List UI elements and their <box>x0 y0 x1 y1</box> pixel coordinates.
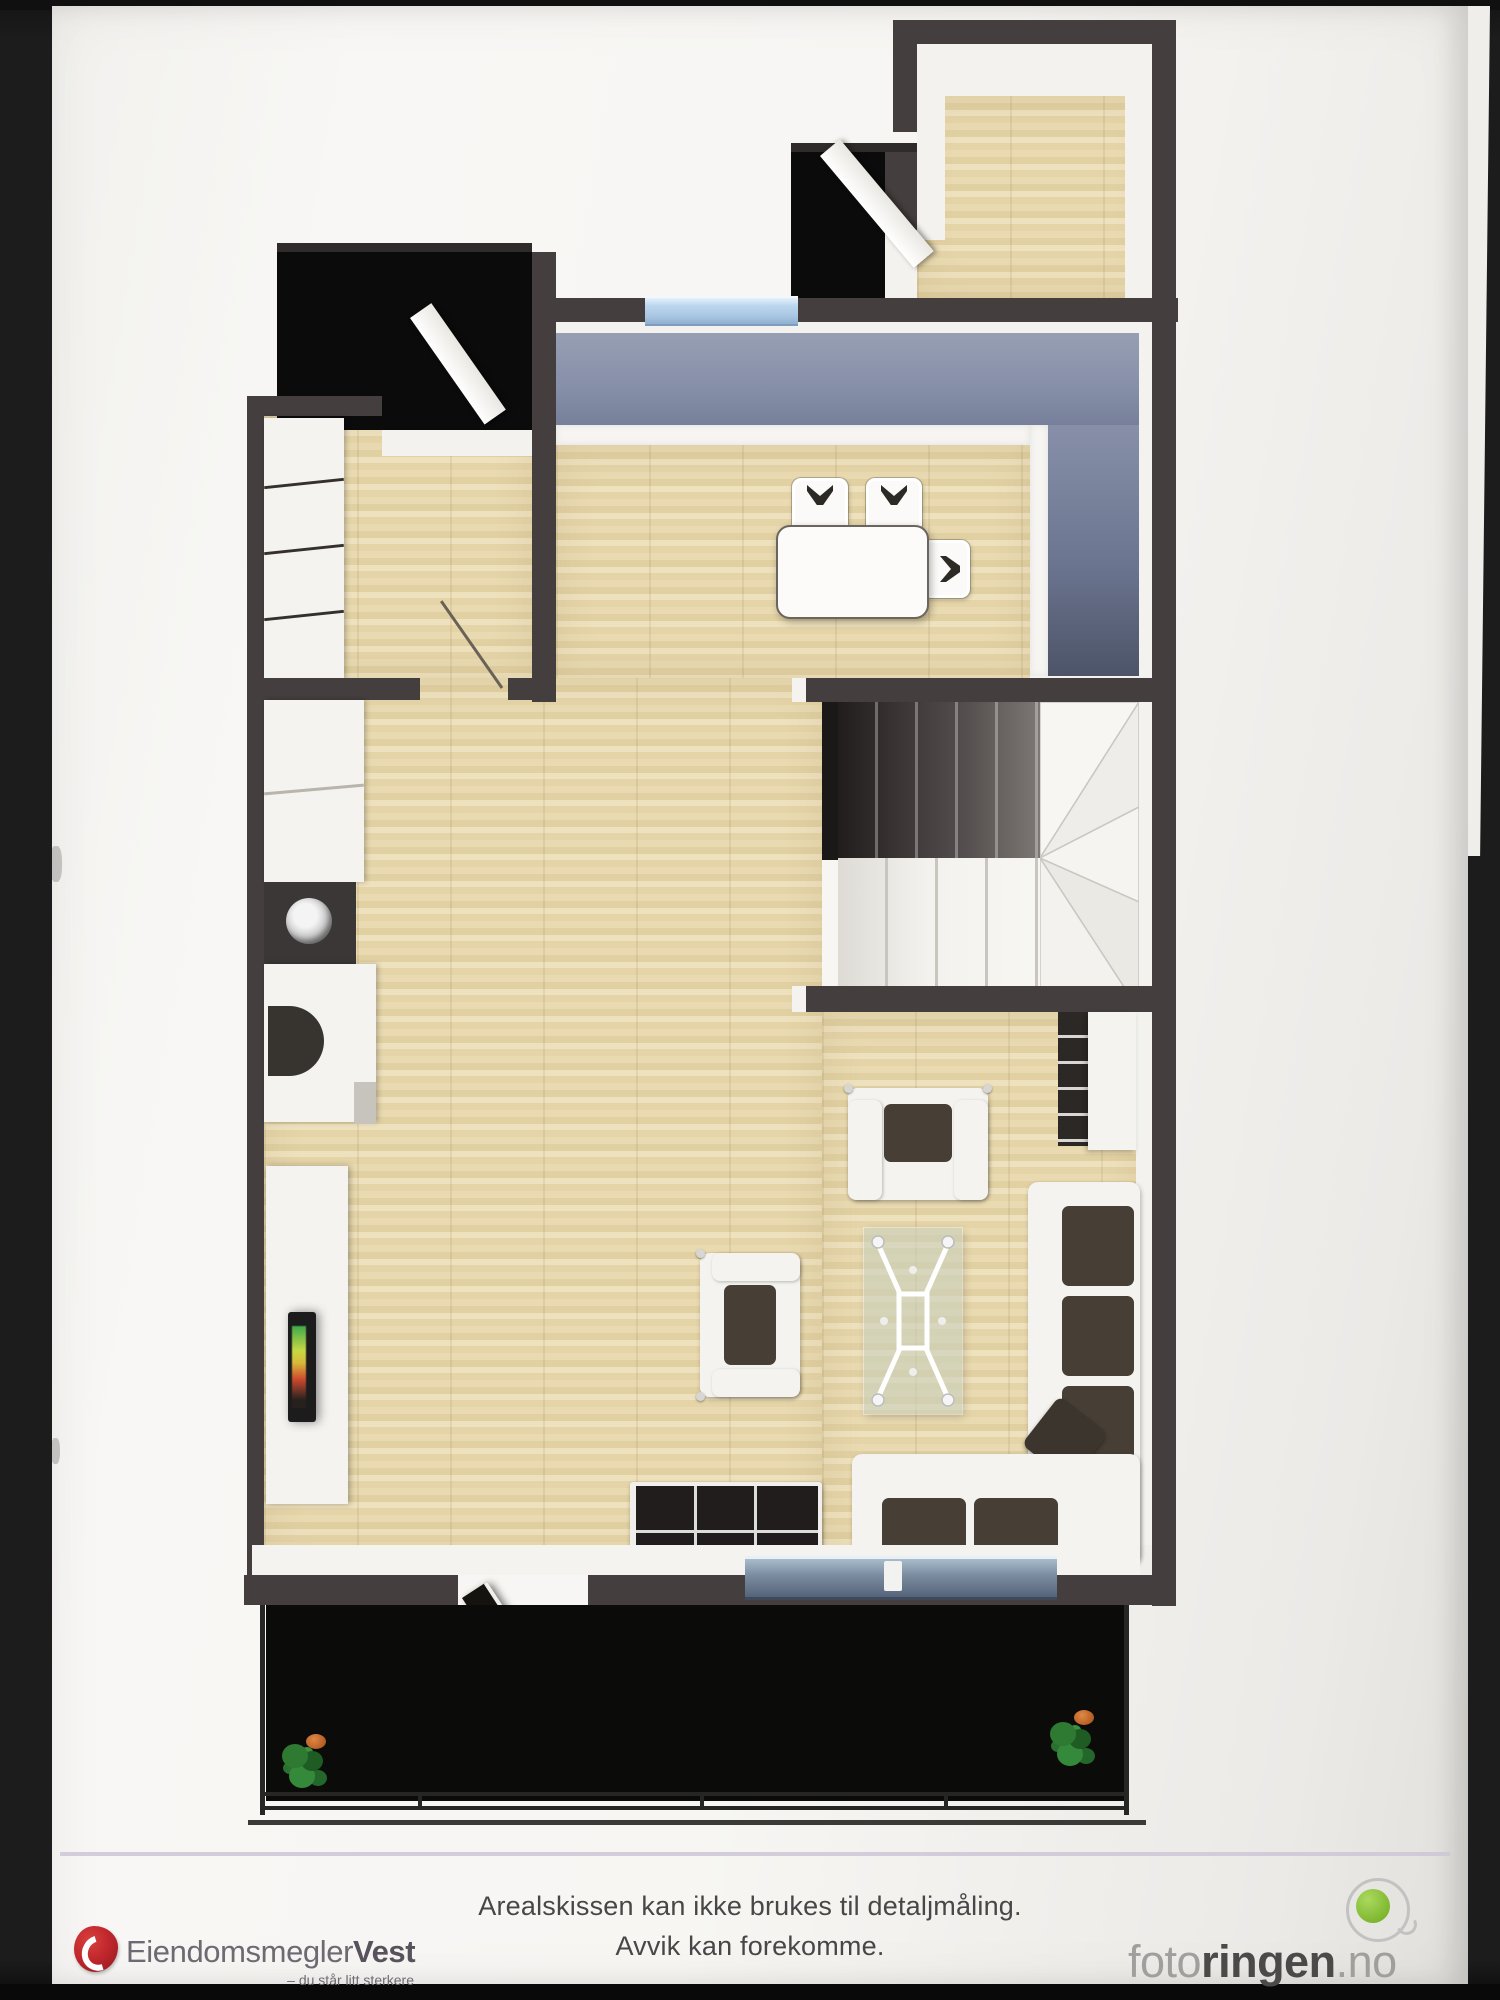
armchair-knob <box>844 1084 853 1093</box>
railing-post <box>700 1792 704 1810</box>
outer-wall-left <box>247 396 264 1602</box>
wardrobe-divider <box>264 478 344 489</box>
counter-end-panel <box>354 1082 376 1124</box>
floor-plan <box>0 0 1500 2000</box>
tv <box>288 1312 316 1422</box>
brand-left: EiendomsmeglerVest – du står litt sterke… <box>74 1924 494 1984</box>
accent-wall-trim-vertical <box>1030 425 1048 676</box>
loveseat <box>700 1253 800 1397</box>
plant-foliage <box>282 1744 308 1768</box>
sliding-glass-door <box>745 1556 1057 1600</box>
accent-wall-trim-horizontal <box>556 425 1030 445</box>
entry-wall-left <box>893 20 917 132</box>
balcony-railing-inner <box>260 1792 1129 1796</box>
storage-doorway-face <box>382 430 532 456</box>
accent-wall-blue-right <box>1048 425 1139 676</box>
footer-divider <box>60 1852 1450 1856</box>
hallway-wall-bottom <box>247 678 420 700</box>
photographed-brochure-page: { "page": { "disclaimer": { "line1": "Ar… <box>0 0 1500 2000</box>
coffee-table-frame <box>864 1228 962 1414</box>
balcony-floor <box>266 1605 1128 1801</box>
kitchen-counter-upper <box>264 700 364 882</box>
chair-back-mark <box>807 485 833 505</box>
brand-left-name-regular: Eiendomsmegler <box>126 1934 353 1969</box>
loveseat-knob <box>696 1392 705 1401</box>
sliding-door-handle <box>884 1561 902 1591</box>
sofa-cushion <box>1062 1296 1134 1376</box>
armchair-armrest <box>954 1100 988 1200</box>
staircase-upper-flight <box>838 702 1040 858</box>
entry-wall-face-left <box>917 96 945 240</box>
storage-wall-top <box>277 243 532 252</box>
loveseat-armrest <box>712 1253 800 1281</box>
counter-seam <box>264 784 364 796</box>
fotoringen-logo-icon <box>1346 1878 1410 1942</box>
armchair <box>848 1088 988 1200</box>
dining-chair <box>922 540 970 598</box>
stair-wall-cap <box>792 986 806 1012</box>
balcony-railing-outer <box>248 1820 1146 1825</box>
wardrobe-divider <box>264 610 344 621</box>
hallway-wall-top <box>247 396 382 416</box>
loveseat-cushion <box>724 1285 776 1365</box>
entry-wall-top <box>893 20 1176 44</box>
bottom-wall-left <box>244 1575 458 1605</box>
balcony-railing-right <box>1124 1605 1129 1815</box>
hallway-wall-stub <box>508 678 556 700</box>
plant-foliage <box>1050 1722 1076 1746</box>
railing-post <box>944 1792 948 1810</box>
accent-wall-blue-top <box>556 333 1139 428</box>
vestibule-wall-top <box>791 143 917 152</box>
tv-screen <box>292 1326 306 1408</box>
stair-wall-cap <box>792 678 806 702</box>
stair-wall-top <box>806 678 1154 702</box>
loveseat-armrest <box>712 1369 800 1397</box>
balcony-railing-left <box>260 1605 265 1815</box>
disclaimer-line-1: Arealskissen kan ikke brukes til detaljm… <box>380 1886 1120 1926</box>
dining-table <box>776 525 929 619</box>
kitchen-sink <box>286 898 332 944</box>
living-wall-left-upper <box>532 252 556 702</box>
brand-right-name-no: .no <box>1336 1936 1397 1987</box>
glass-coffee-table <box>864 1228 962 1414</box>
wardrobe-divider <box>264 544 344 555</box>
plant-pot <box>306 1734 326 1749</box>
armchair-cushion <box>884 1104 952 1162</box>
chair-back-mark <box>940 556 960 582</box>
brand-right-name: fotoringen.no <box>1128 1936 1397 1988</box>
living-wall-top <box>540 298 1178 322</box>
railing-post <box>418 1792 422 1810</box>
wardrobe-cabinets <box>264 418 344 680</box>
balcony-railing-mid <box>260 1806 1129 1810</box>
sofa-cushion <box>1062 1206 1134 1286</box>
staircase-winder-steps <box>1040 702 1139 1012</box>
stair-wall-left <box>822 702 838 860</box>
stair-wall-bottom <box>806 986 1154 1012</box>
potted-plant <box>280 1734 336 1794</box>
brand-left-name: EiendomsmeglerVest <box>126 1934 415 1970</box>
entry-room-floor <box>917 96 1152 298</box>
window-strip <box>645 296 798 326</box>
armchair-knob <box>983 1084 992 1093</box>
plant-pot <box>1074 1710 1094 1725</box>
shelf-unit <box>1088 1012 1136 1150</box>
entry-wall-face-right <box>1125 96 1152 298</box>
brand-right: fotoringen.no <box>1128 1878 1468 1988</box>
entry-wall-face-top <box>917 44 1152 96</box>
eiendomsmegler-vest-logo-icon <box>74 1926 118 1972</box>
brand-left-tagline: – du står litt sterkere <box>244 1972 414 1988</box>
potted-plant <box>1046 1710 1106 1780</box>
brand-right-name-foto: foto <box>1128 1936 1201 1987</box>
outer-wall-right <box>1152 20 1176 1606</box>
brand-left-name-bold: Vest <box>353 1934 415 1969</box>
brand-right-name-ringen: ringen <box>1201 1936 1336 1987</box>
bookshelf <box>1058 1012 1088 1146</box>
armchair-armrest <box>848 1100 882 1200</box>
loveseat-knob <box>696 1249 705 1258</box>
chair-back-mark <box>881 485 907 505</box>
